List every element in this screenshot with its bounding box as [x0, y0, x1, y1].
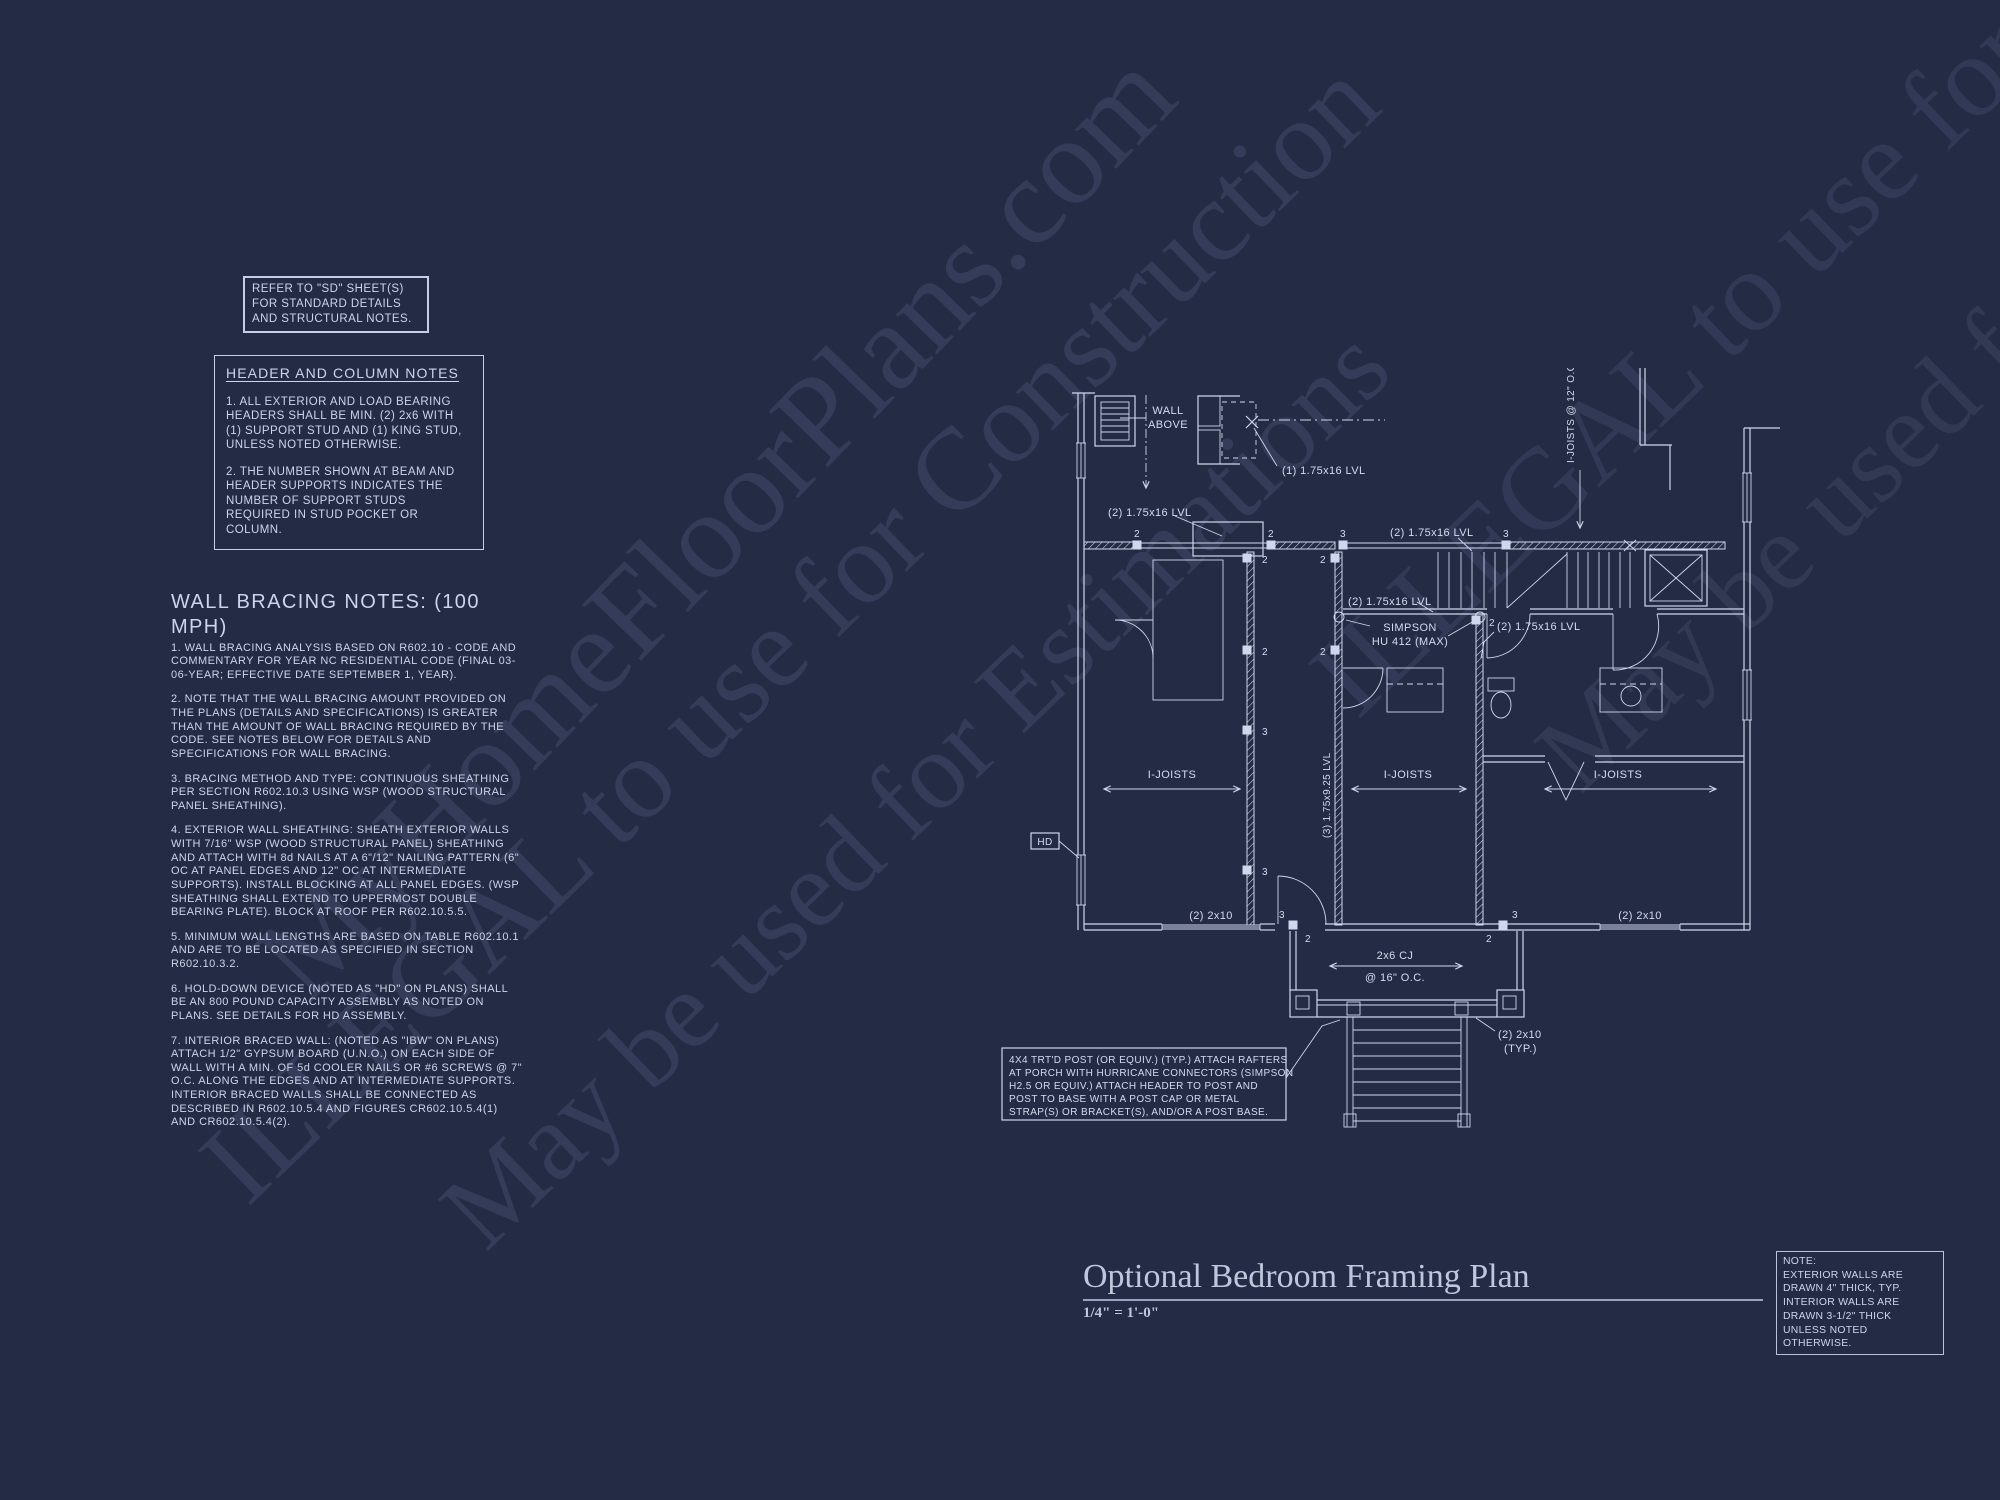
lvl-callout-3: (2) 1.75x16 LVL — [1390, 527, 1473, 551]
window — [1742, 670, 1752, 720]
ijoists-label: I-JOISTS — [1384, 769, 1432, 781]
wall-thickness-line: NOTE: — [1783, 1255, 1937, 1269]
support-count: 3 — [1340, 529, 1346, 540]
hd-label: HD — [1037, 837, 1052, 848]
lvl-label: (1) 1.75x16 LVL — [1282, 465, 1365, 477]
ijoists-callouts: I-JOISTS I-JOISTS I-JOISTS — [1104, 769, 1716, 789]
door — [1613, 614, 1659, 670]
support-count: 2 — [1320, 555, 1326, 566]
simpson-label: HU 412 (MAX) — [1372, 636, 1448, 648]
window — [1742, 473, 1752, 522]
wall-bracing-item: 3. BRACING METHOD AND TYPE: CONTINUOUS S… — [171, 773, 525, 814]
support-count: 2 — [1268, 529, 1274, 540]
window — [1600, 924, 1680, 930]
hd-callout: HD — [1031, 833, 1079, 858]
wall-bracing-item: 1. WALL BRACING ANALYSIS BASED ON R602.1… — [171, 642, 525, 683]
stairs — [1438, 552, 1630, 608]
sd-reference-line: AND STRUCTURAL NOTES. — [252, 312, 420, 327]
ceiling-joist-label: @ 16" O.C. — [1365, 972, 1425, 984]
support-count: 2 — [1262, 647, 1268, 658]
header-label: (2) 2x10 — [1189, 910, 1233, 922]
wall-thickness-line: UNLESS NOTED OTHERWISE. — [1783, 1324, 1937, 1351]
door — [1278, 876, 1326, 924]
support-count: 3 — [1503, 529, 1509, 540]
header-column-notes: HEADER AND COLUMN NOTES 1. ALL EXTERIOR … — [214, 355, 484, 550]
simpson-hanger-callout: SIMPSON HU 412 (MAX) — [1334, 612, 1485, 648]
upper-walls — [1072, 368, 1780, 930]
porch-stairs — [1344, 1017, 1470, 1127]
door — [1548, 762, 1584, 800]
wall-above-label: WALL — [1152, 405, 1183, 417]
sd-reference-line: REFER TO "SD" SHEET(S) — [252, 282, 420, 297]
wall-bracing-item: 2. NOTE THAT THE WALL BRACING AMOUNT PRO… — [171, 693, 525, 761]
post-note-line: AT PORCH WITH HURRICANE CONNECTORS (SIMP… — [1009, 1068, 1293, 1079]
wall-above-callout: WALL ABOVE — [1120, 395, 1188, 488]
support-count: 2 — [1489, 618, 1495, 629]
blueprint-sheet: MyHomeFloorPlans.com ILLEGAL to use for … — [0, 0, 2000, 1500]
post-note-line: H2.5 OR EQUIV.) ATTACH HEADER TO POST AN… — [1009, 1081, 1258, 1092]
sd-reference-note: REFER TO "SD" SHEET(S) FOR STANDARD DETA… — [243, 276, 429, 333]
wall-above-outline — [1198, 396, 1385, 464]
post-note-line: POST TO BASE WITH A POST CAP OR METAL — [1009, 1094, 1239, 1105]
support-count: 2 — [1305, 934, 1311, 945]
left-closet — [1115, 560, 1223, 700]
wall-thickness-line: DRAWN 3-1/2" THICK — [1783, 1310, 1937, 1324]
window — [1076, 443, 1086, 478]
simpson-label: SIMPSON — [1383, 622, 1437, 634]
scale-label: 1/4" = 1'-0" — [1083, 1305, 1763, 1322]
ceiling-joist-label: 2x6 CJ — [1377, 950, 1414, 962]
toilet — [1488, 678, 1514, 718]
lvl-callout-5: (2) 1.75x16 LVL — [1481, 621, 1580, 658]
header-label: (2) 2x10 — [1618, 910, 1662, 922]
wall-bracing-item: 5. MINIMUM WALL LENGTHS ARE BASED ON TAB… — [171, 931, 525, 972]
sd-reference-line: FOR STANDARD DETAILS — [252, 297, 420, 312]
support-count: 2 — [1262, 555, 1268, 566]
window — [1162, 924, 1260, 930]
bedroom-closet — [1343, 668, 1443, 712]
header-column-note-item: 1. ALL EXTERIOR AND LOAD BEARING HEADERS… — [226, 395, 472, 453]
porch-beam-callout: (2) 2x10 (TYP.) — [1476, 1018, 1542, 1055]
support-count: 3 — [1262, 727, 1268, 738]
wall-bracing-notes: WALL BRACING NOTES: (100 MPH) 1. WALL BR… — [171, 590, 525, 1141]
ijoists-vertical-callout: I-JOISTS @ 12" O.C. — [1566, 368, 1580, 528]
lvl-callout-1: (1) 1.75x16 LVL — [1254, 428, 1365, 477]
wall-thickness-line: INTERIOR WALLS ARE — [1783, 1296, 1937, 1310]
lvl-label: (2) 1.75x16 LVL — [1348, 596, 1431, 608]
lvl-label: (3) 1.75x9.25 LVL — [1322, 752, 1333, 838]
ijoists-label: I-JOISTS — [1594, 769, 1642, 781]
support-count: 3 — [1279, 910, 1285, 921]
framing-plan-drawing: WALL ABOVE (1) 1.75x16 LVL I-JOISTS @ 12… — [1000, 368, 1780, 1168]
wall-thickness-note: NOTE: EXTERIOR WALLS ARE DRAWN 4" THICK,… — [1776, 1251, 1944, 1355]
lvl-label: (2) 1.75x16 LVL — [1390, 527, 1473, 539]
ijoists-vertical-label: I-JOISTS @ 12" O.C. — [1566, 368, 1577, 463]
wall-thickness-line: DRAWN 4" THICK, TYP. — [1783, 1282, 1937, 1296]
page-title: Optional Bedroom Framing Plan — [1083, 1258, 1763, 1301]
header-column-note-item: 2. THE NUMBER SHOWN AT BEAM AND HEADER S… — [226, 465, 472, 537]
chimney — [1095, 396, 1135, 446]
window — [1076, 855, 1086, 905]
post-note: 4X4 TRT'D POST (OR EQUIV.) (TYP.) ATTACH… — [1002, 1020, 1340, 1120]
ijoists-label: I-JOISTS — [1148, 769, 1196, 781]
support-count: 2 — [1320, 647, 1326, 658]
support-count: 2 — [1486, 934, 1492, 945]
title-block: Optional Bedroom Framing Plan 1/4" = 1'-… — [1083, 1258, 1763, 1322]
bottom-wall: (2) 2x10 (2) 2x10 3 2 3 2 — [1084, 876, 1750, 945]
wall-bracing-item: 4. EXTERIOR WALL SHEATHING: SHEATH EXTER… — [171, 824, 525, 919]
wall-above-label: ABOVE — [1148, 419, 1188, 431]
wall-bracing-item: 6. HOLD-DOWN DEVICE (NOTED AS "HD" ON PL… — [171, 983, 525, 1024]
vanity — [1600, 668, 1662, 712]
wall-bracing-title: WALL BRACING NOTES: (100 MPH) — [171, 590, 525, 640]
header-column-notes-title: HEADER AND COLUMN NOTES — [226, 365, 472, 383]
shaft — [1645, 550, 1707, 606]
post-note-line: 4X4 TRT'D POST (OR EQUIV.) (TYP.) ATTACH… — [1009, 1055, 1288, 1066]
wall-bracing-item: 7. INTERIOR BRACED WALL: (NOTED AS "IBW"… — [171, 1035, 525, 1130]
lvl-label: (2) 1.75x16 LVL — [1497, 621, 1580, 633]
post-note-line: STRAP(S) OR BRACKET(S), AND/OR A POST BA… — [1009, 1107, 1268, 1118]
beam-label: (2) 2x10 — [1498, 1029, 1542, 1041]
wall-thickness-line: EXTERIOR WALLS ARE — [1783, 1269, 1937, 1283]
support-count: 2 — [1134, 529, 1140, 540]
support-count: 3 — [1262, 867, 1268, 878]
lvl-label: (2) 1.75x16 LVL — [1108, 507, 1191, 519]
beam-label: (TYP.) — [1504, 1043, 1537, 1055]
support-count: 3 — [1512, 910, 1518, 921]
